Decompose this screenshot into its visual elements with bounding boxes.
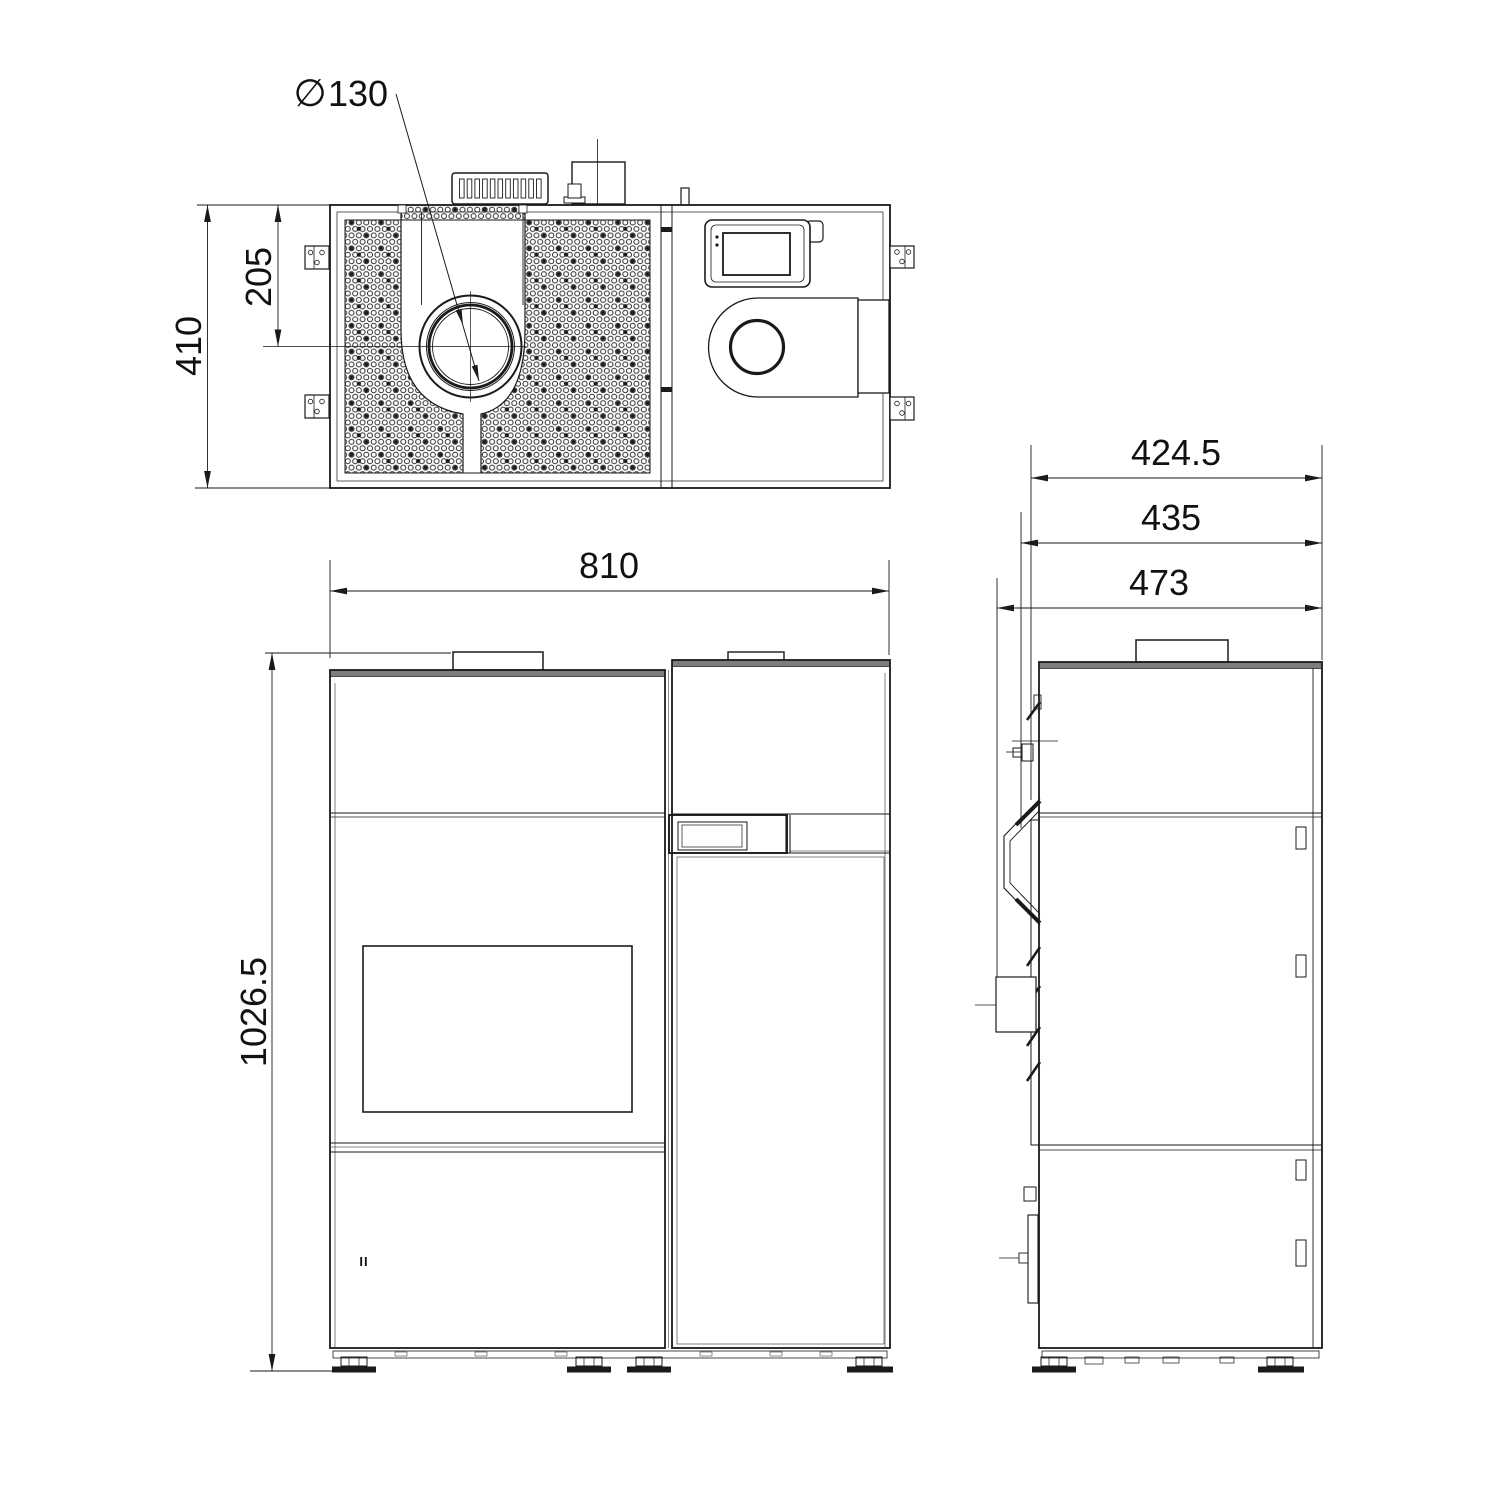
upper-panel-groove — [330, 813, 665, 817]
front-top-band-right — [672, 660, 890, 667]
hopper-panel-frame — [677, 857, 884, 1344]
convection-fan — [709, 298, 858, 397]
lower-door-mark: II — [359, 1254, 368, 1269]
diameter-symbol: ∅ — [293, 71, 326, 115]
front-left-section — [330, 670, 665, 1348]
hopper-handle-recess — [678, 822, 747, 850]
hinge-tick — [1027, 702, 1040, 720]
side-lower-door — [999, 1187, 1038, 1303]
adjustable-foot — [1258, 1357, 1304, 1373]
display-screen — [723, 233, 790, 275]
front-view: II — [330, 652, 893, 1373]
adjustable-foot — [567, 1357, 611, 1373]
dim-text-flue-offset: 205 — [238, 247, 279, 307]
side-body — [1039, 662, 1322, 1348]
front-top-band-left — [330, 670, 665, 677]
door-hinges — [1296, 827, 1306, 1266]
dim-text-top-depth: 410 — [168, 316, 209, 376]
adjustable-foot — [1032, 1357, 1076, 1373]
side-dividers — [1039, 813, 1322, 1150]
auger-channel — [1004, 799, 1040, 925]
drawing-page: 410 205 ∅ 130 II — [0, 0, 1500, 1500]
side-recess — [858, 300, 889, 393]
dim-text-front-width: 810 — [579, 545, 639, 586]
rear-outlet — [975, 977, 1036, 1032]
side-top-cap — [1136, 640, 1228, 662]
adjustable-foot — [847, 1357, 893, 1373]
mounting-bracket — [890, 397, 914, 420]
adjustable-foot — [627, 1357, 671, 1373]
front-view-dimensions: 810 1026.5 — [233, 545, 889, 1371]
door-window — [363, 946, 632, 1112]
mounting-bracket — [890, 246, 914, 268]
dim-text-front-height: 1026.5 — [233, 957, 274, 1067]
top-edge-tab — [681, 188, 689, 205]
display-led — [715, 235, 718, 238]
base-assembly-front — [332, 1351, 893, 1373]
front-top-cap-left — [453, 652, 543, 670]
front-right-section — [672, 660, 890, 1348]
lower-door-knob — [1024, 1187, 1036, 1201]
dim-text-side-depth-overall: 473 — [1129, 562, 1189, 603]
mounting-bracket — [305, 395, 329, 418]
side-view-dimensions: 424.5 435 473 — [997, 432, 1322, 977]
door-bottom-groove — [330, 1143, 665, 1152]
mounting-bracket — [305, 246, 329, 269]
side-bolt — [1006, 741, 1058, 761]
control-display — [705, 220, 823, 287]
base-assembly-side — [1032, 1351, 1319, 1373]
dim-text-side-depth-top: 424.5 — [1131, 432, 1221, 473]
side-view — [975, 640, 1322, 1373]
technical-drawing-canvas: 410 205 ∅ 130 II — [0, 0, 1500, 1500]
side-top-band — [1039, 662, 1322, 669]
fan-inlet-circle — [731, 321, 784, 374]
display-led — [715, 243, 718, 246]
dim-text-flue-diameter: 130 — [328, 73, 388, 114]
hopper-lid-band — [669, 814, 890, 853]
dim-text-side-depth-mid: 435 — [1141, 497, 1201, 538]
adjustable-foot — [332, 1357, 376, 1373]
top-view — [263, 139, 914, 488]
